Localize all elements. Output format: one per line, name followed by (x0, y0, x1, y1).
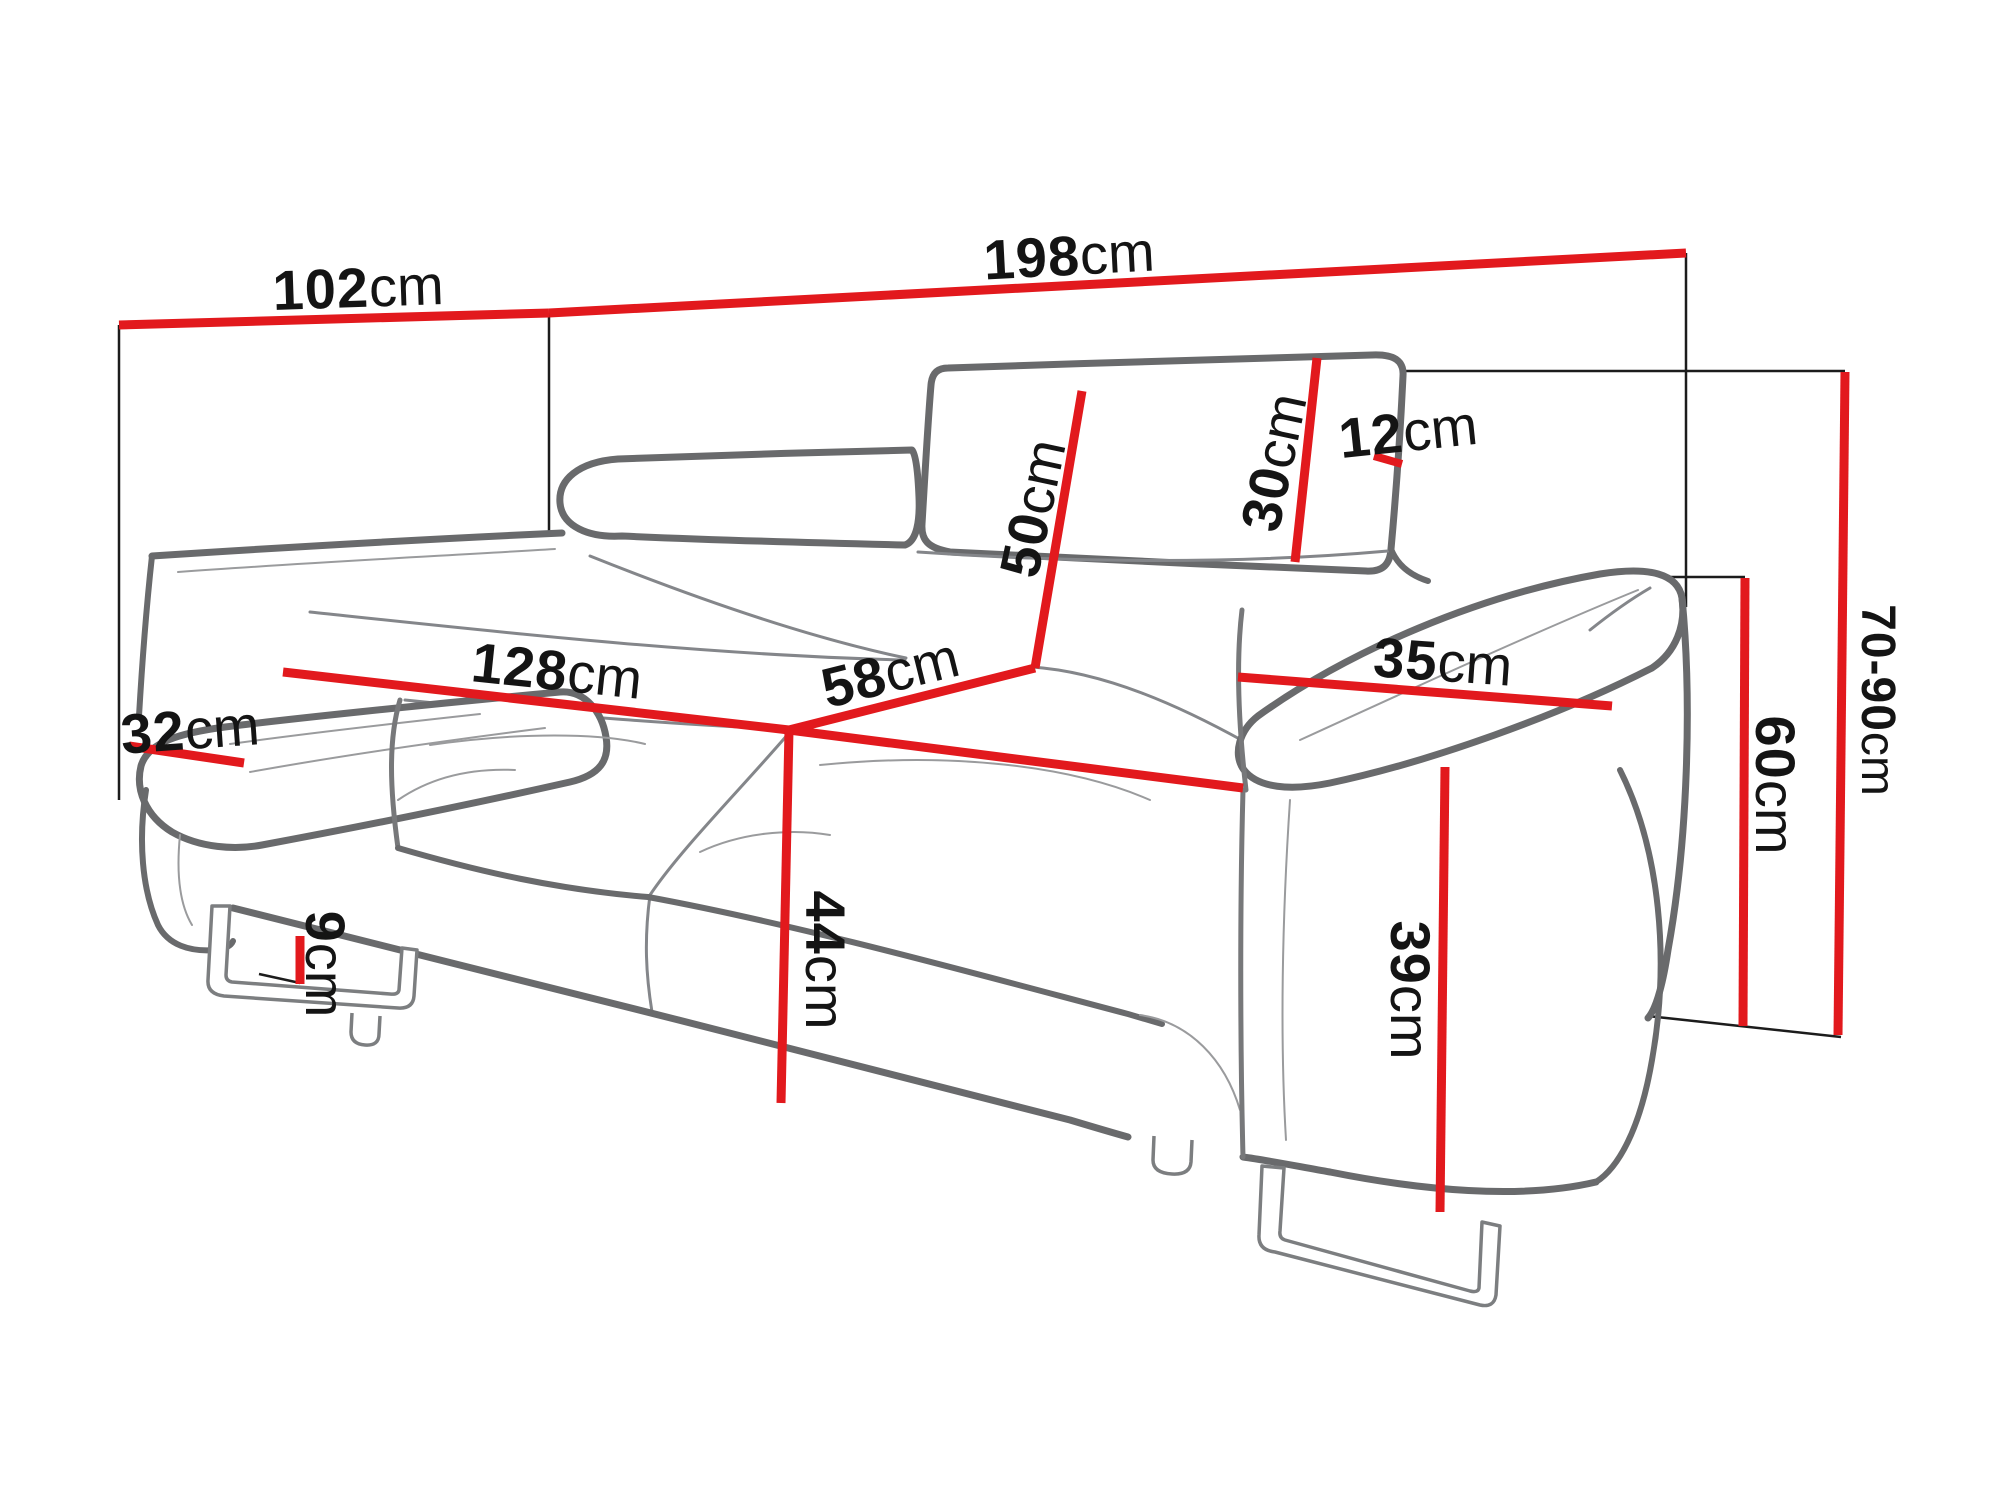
dim-unit-60: cm (1745, 780, 1808, 855)
dim-unit-128: cm (565, 640, 646, 710)
dim-label-70-90: 70-90cm (1852, 604, 1905, 796)
dim-value-12: 12 (1336, 400, 1407, 469)
dim-value-9: 9 (295, 911, 358, 943)
dim-value-35: 35 (1371, 625, 1440, 692)
right-cushion-corner-crease (700, 832, 830, 852)
right-rear-foot (1153, 1136, 1192, 1174)
dim-label-9: 9cm (295, 911, 358, 1018)
ext-line-9cm-tick (259, 974, 300, 983)
dim-unit-12: cm (1400, 392, 1481, 462)
left-rear-foot (351, 1013, 380, 1045)
dim-line-70-90 (1838, 372, 1845, 1035)
dim-value-70-90: 70-90 (1852, 604, 1905, 732)
dim-value-60: 60 (1745, 716, 1808, 780)
dim-unit-9: cm (295, 943, 358, 1018)
dim-unit-70-90: cm (1852, 732, 1905, 796)
dim-unit-198: cm (1078, 219, 1156, 286)
dim-label-60: 60cm (1745, 716, 1808, 855)
dim-label-44: 44cm (795, 891, 858, 1030)
sofa-back-left-edge (139, 556, 152, 716)
seat-center-seam (646, 733, 789, 1012)
dim-value-128: 128 (469, 630, 571, 703)
dim-label-102: 102cm (271, 253, 444, 322)
dim-label-35: 35cm (1371, 625, 1514, 698)
sofa-dimension-diagram: 102cm 198cm 12cm 30cm 50cm 70-90cm 35cm … (0, 0, 2000, 1499)
right-armrest-front-bulge (1596, 770, 1661, 1182)
right-headrest-corner (1391, 549, 1428, 581)
dim-unit-102: cm (368, 253, 445, 319)
right-armrest-front-seam (1283, 800, 1290, 1140)
dim-value-198: 198 (982, 223, 1082, 291)
dim-label-12: 12cm (1336, 392, 1481, 469)
diagram-canvas: 102cm 198cm 12cm 30cm 50cm 70-90cm 35cm … (0, 0, 2000, 1499)
dim-unit-44: cm (795, 955, 858, 1030)
dim-unit-32: cm (183, 693, 262, 761)
dim-label-198: 198cm (982, 219, 1156, 291)
dim-value-32: 32 (118, 698, 187, 765)
dim-value-102: 102 (271, 255, 370, 321)
dim-label-39: 39cm (1380, 921, 1443, 1060)
dim-line-seat-back (789, 730, 1243, 788)
right-armrest-bottom-edge (1243, 1157, 1596, 1191)
sofa-drawing (139, 355, 1687, 1306)
right-seat-tuck-seam (1140, 1015, 1240, 1110)
dim-unit-35: cm (1436, 629, 1515, 697)
right-armrest-front-left-edge (1241, 790, 1243, 1157)
left-headrest-bottom-seam (590, 556, 906, 658)
dim-label-32: 32cm (118, 693, 261, 766)
left-headrest-cushion (560, 450, 919, 545)
left-armrest-front-seam (179, 835, 193, 925)
dim-unit-39: cm (1380, 985, 1443, 1060)
dim-value-39: 39 (1380, 921, 1443, 985)
dim-value-44: 44 (795, 891, 858, 955)
